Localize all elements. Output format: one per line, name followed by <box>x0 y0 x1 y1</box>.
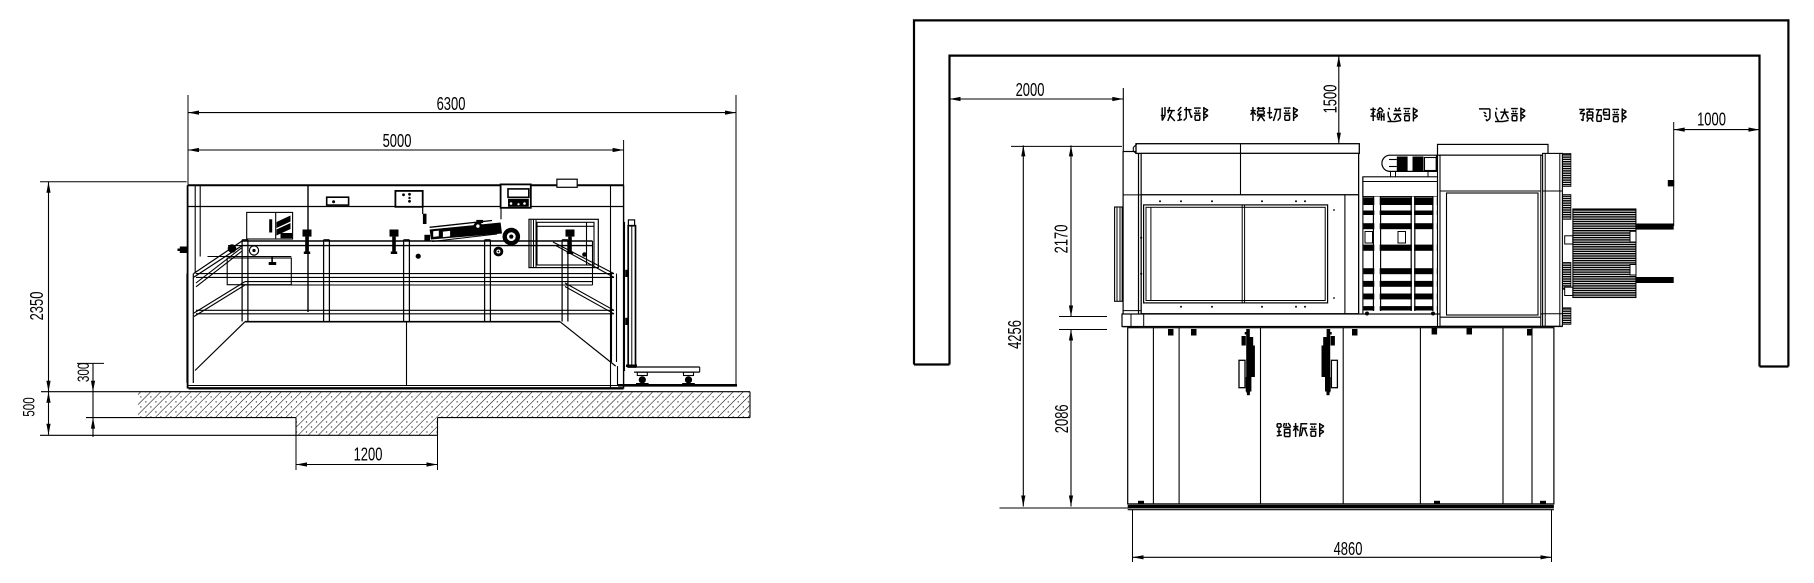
svg-text:2170: 2170 <box>1051 225 1072 254</box>
svg-text:6300: 6300 <box>437 93 466 114</box>
svg-text:2000: 2000 <box>1016 79 1045 100</box>
svg-text:1200: 1200 <box>354 443 383 464</box>
svg-text:2350: 2350 <box>26 292 47 321</box>
svg-text:1000: 1000 <box>1697 108 1726 129</box>
svg-text:5000: 5000 <box>383 130 412 151</box>
svg-text:2086: 2086 <box>1051 404 1072 433</box>
svg-text:300: 300 <box>74 363 93 383</box>
svg-text:4860: 4860 <box>1334 538 1363 559</box>
svg-text:1500: 1500 <box>1319 85 1340 114</box>
svg-text:4256: 4256 <box>1004 320 1025 349</box>
svg-text:500: 500 <box>20 397 39 417</box>
